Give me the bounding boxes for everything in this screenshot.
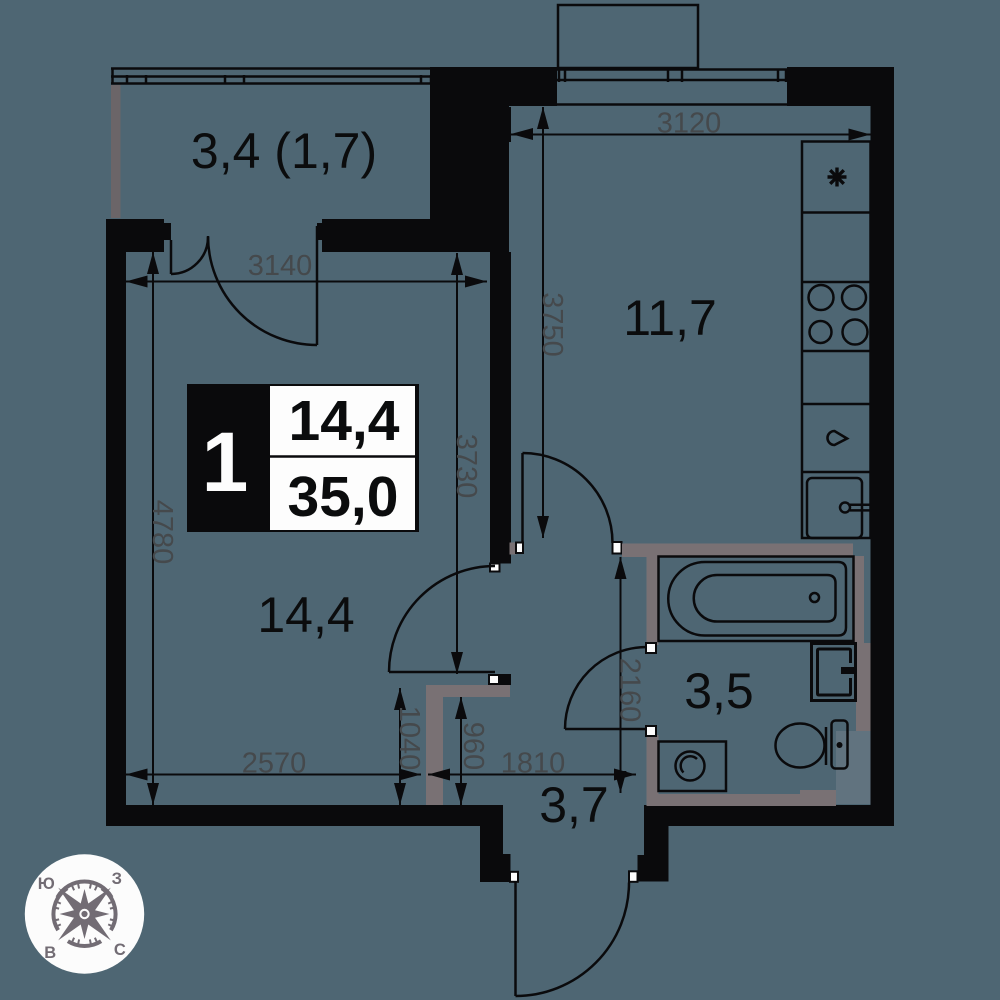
svg-text:1: 1 <box>202 415 249 509</box>
svg-text:С: С <box>114 941 126 959</box>
svg-text:3140: 3140 <box>248 250 313 282</box>
svg-text:3,7: 3,7 <box>539 777 609 833</box>
svg-text:1810: 1810 <box>501 748 566 780</box>
svg-text:В: В <box>44 944 56 962</box>
svg-text:35,0: 35,0 <box>288 465 399 529</box>
svg-text:2160: 2160 <box>614 658 646 723</box>
svg-text:960: 960 <box>457 722 489 770</box>
svg-text:З: З <box>112 870 122 888</box>
svg-text:14,4: 14,4 <box>289 389 400 453</box>
svg-text:2570: 2570 <box>242 748 307 780</box>
svg-text:3120: 3120 <box>657 108 722 140</box>
svg-text:4780: 4780 <box>146 500 178 565</box>
svg-text:11,7: 11,7 <box>623 290 717 346</box>
svg-text:3,5: 3,5 <box>684 663 754 719</box>
svg-text:3,4 (1,7): 3,4 (1,7) <box>191 123 377 179</box>
svg-text:3730: 3730 <box>450 434 482 499</box>
svg-text:14,4: 14,4 <box>257 587 354 643</box>
svg-text:1040: 1040 <box>393 706 425 771</box>
svg-text:3750: 3750 <box>536 292 568 357</box>
svg-text:Ю: Ю <box>38 875 55 893</box>
